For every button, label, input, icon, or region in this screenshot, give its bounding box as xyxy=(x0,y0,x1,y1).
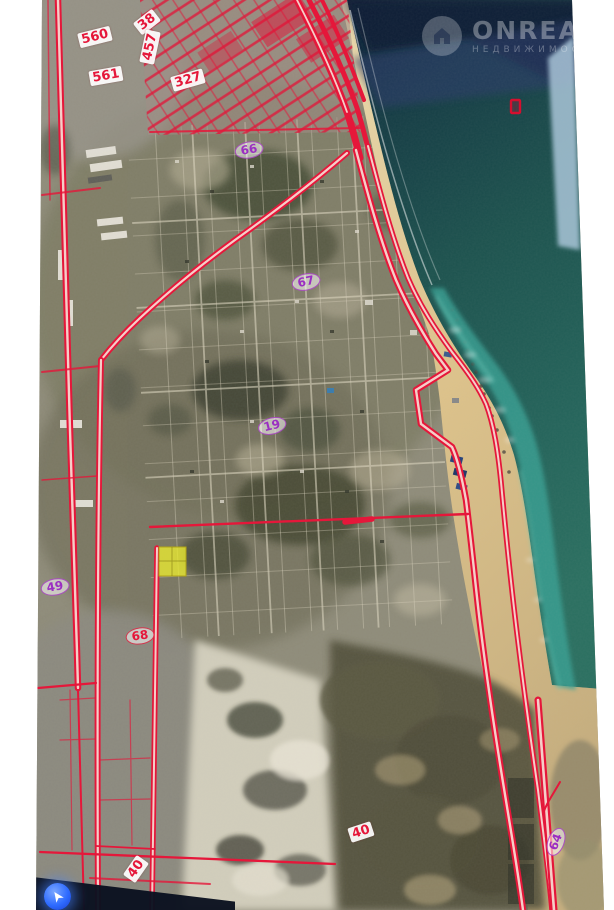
parcel-label: 561 xyxy=(88,66,123,87)
watermark: ONREALT НЕДВИЖИМОСТЬ xyxy=(422,16,613,56)
parcel-label: 66 xyxy=(233,139,264,161)
watermark-brand: ONREALT xyxy=(472,18,613,44)
parcel-label: 19 xyxy=(256,414,288,437)
parcel-label: 327 xyxy=(170,68,206,92)
location-button xyxy=(44,883,71,910)
parcel-label: 67 xyxy=(290,271,322,294)
house-in-circle-icon xyxy=(422,16,462,56)
parcel-label: 560 xyxy=(77,26,113,49)
listing-map-screenshot: 560561384573276667194968404064 ONREALT Н… xyxy=(0,0,614,910)
parcel-label: 40 xyxy=(347,821,375,843)
parcel-label: 49 xyxy=(39,576,70,598)
parcel-label: 40 xyxy=(123,855,149,883)
parcel-labels-layer: 560561384573276667194968404064 xyxy=(0,0,614,910)
parcel-label: 64 xyxy=(543,826,569,859)
watermark-subtitle: НЕДВИЖИМОСТЬ xyxy=(472,45,613,55)
map-photo: 560561384573276667194968404064 ONREALT Н… xyxy=(0,0,614,910)
navigation-arrow-icon xyxy=(51,890,64,903)
parcel-label: 68 xyxy=(125,626,156,647)
